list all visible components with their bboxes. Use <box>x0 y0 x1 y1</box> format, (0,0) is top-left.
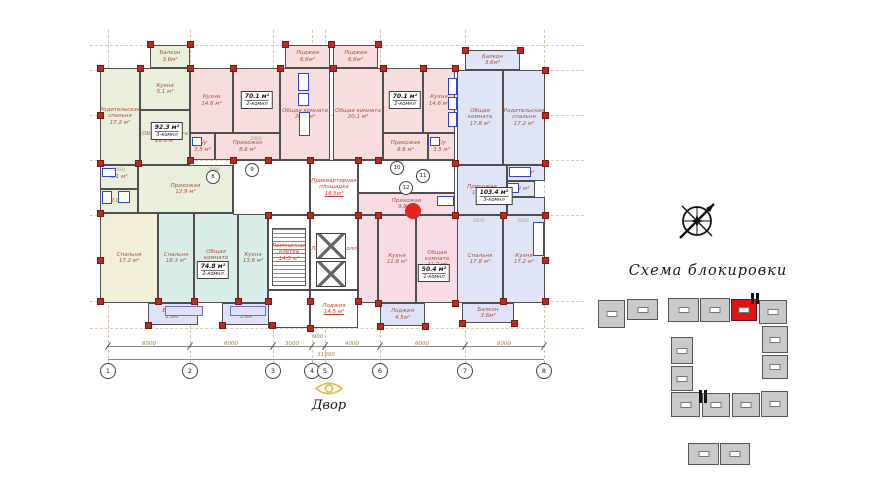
column-marker <box>187 157 194 164</box>
scheme-block[interactable] <box>700 298 730 322</box>
room-core-entry-area: Приквартирная площадка16.5м² <box>310 160 358 215</box>
apartment-type: 1-комнл <box>422 274 446 280</box>
column-marker <box>375 300 382 307</box>
scheme-block[interactable] <box>668 298 699 322</box>
apartment-area: 74.8 м² <box>201 263 225 271</box>
apartment-type: 2-комнл <box>201 271 225 277</box>
room-area: 17.8 м² <box>470 259 490 265</box>
axis-bubble-8: 8 <box>536 363 552 379</box>
plumbing-fixture <box>437 196 454 206</box>
plumbing-fixture <box>448 97 457 110</box>
column-marker <box>422 323 429 330</box>
column-marker <box>511 320 518 327</box>
apartment-type: 3-комнл <box>480 197 509 203</box>
column-marker <box>307 325 314 332</box>
room-green-parent-bedroom: Родительская спальня17.2 м² <box>100 68 140 165</box>
scheme-block-plate <box>770 364 781 370</box>
dimension-value: 6000 <box>497 341 511 347</box>
scheme-block[interactable] <box>762 326 788 353</box>
column-marker <box>97 112 104 119</box>
room-blue-top-living: Общая комната17.8 м² <box>457 70 503 165</box>
room-teal-bedroom: Спальня18.3 м² <box>158 213 194 303</box>
plumbing-fixture <box>192 137 202 146</box>
column-marker <box>147 41 154 48</box>
column-marker <box>377 323 384 330</box>
apartment-type: 2-комнл <box>245 101 269 107</box>
room-area: 6.6м² <box>300 57 315 63</box>
plumbing-fixture <box>448 78 457 95</box>
room-name: Родительская спальня <box>504 108 544 121</box>
column-marker <box>219 322 226 329</box>
scheme-block[interactable] <box>688 443 719 465</box>
blocking-scheme-title: Схема блокировки <box>608 263 808 279</box>
dimension-value: 3000 <box>285 341 299 347</box>
scheme-block[interactable] <box>598 300 625 328</box>
apartment-area: 50.4 м² <box>422 266 446 274</box>
plumbing-fixture <box>298 73 309 91</box>
column-marker <box>542 257 549 264</box>
room-area: 17.2 м² <box>119 258 139 264</box>
column-marker <box>375 41 382 48</box>
room-yellow-bedroom: Спальня17.2 м² <box>100 213 158 303</box>
room-area: 3.6м² <box>162 57 177 63</box>
column-marker <box>517 47 524 54</box>
plumbing-fixture <box>230 306 266 316</box>
dimension-value: 6000 <box>415 341 429 347</box>
scheme-block-plate <box>730 451 741 457</box>
column-marker <box>191 298 198 305</box>
column-marker <box>97 160 104 167</box>
axis-bubble-3: 3 <box>265 363 281 379</box>
column-marker <box>355 298 362 305</box>
elevator-shaft <box>316 233 346 259</box>
scheme-section-tick <box>751 293 754 304</box>
column-marker <box>187 65 194 72</box>
room-area: 4.5м² <box>395 315 410 321</box>
column-marker <box>265 157 272 164</box>
room-pink3-kitchen: Кухня11.6 м² <box>378 215 416 303</box>
room-pink3-gap <box>358 215 378 303</box>
room-blue-top-balcony: Балкон3.6м² <box>465 50 520 70</box>
scheme-block-plate <box>677 376 688 382</box>
column-marker <box>420 65 427 72</box>
column-marker <box>375 212 382 219</box>
room-pink3-living: Общая комната21.2 м² <box>416 215 458 303</box>
room-pink1-loggia: Лоджия6.6м² <box>285 45 330 68</box>
room-name: Общая комната <box>458 108 502 121</box>
scheme-block-plate <box>678 307 689 313</box>
apartment-label: 74.8 м²2-комнл <box>197 261 229 279</box>
dimension-line-segments <box>108 346 544 347</box>
scheme-block-plate <box>769 401 780 407</box>
scheme-section-tick <box>704 390 707 403</box>
room-pink3-loggia: Лоджия4.5м² <box>380 303 425 326</box>
scheme-block[interactable] <box>762 355 788 379</box>
axis-bubble-6: 6 <box>372 363 388 379</box>
column-marker <box>230 157 237 164</box>
scheme-block-plate <box>739 307 750 313</box>
courtyard-label: Двор <box>297 398 361 413</box>
scheme-block[interactable] <box>671 392 700 417</box>
dimension-value: 6000 <box>224 341 238 347</box>
apartment-area: 92.3 м² <box>155 124 179 132</box>
scheme-block[interactable] <box>720 443 750 465</box>
axis-bubble-1: 1 <box>100 363 116 379</box>
interior-dimension: 2820 <box>517 219 528 224</box>
room-area: 17.2 м² <box>514 259 534 265</box>
column-marker <box>452 300 459 307</box>
room-teal-kitchen: Кухня13.8 м² <box>238 213 268 303</box>
room-core-loggia: Лоджия14.5 м² <box>310 290 358 328</box>
column-marker <box>307 157 314 164</box>
room-area: 13.8 м² <box>243 258 263 264</box>
column-marker <box>542 160 549 167</box>
apartment-label: 50.4 м²1-комнл <box>418 264 450 282</box>
column-marker <box>542 67 549 74</box>
room-area: 14.6 м² <box>429 101 449 107</box>
room-name: Приквартирная площадка <box>311 178 357 191</box>
selected-apartment-dot[interactable] <box>405 203 421 219</box>
scheme-block-plate <box>768 309 779 315</box>
column-marker <box>97 257 104 264</box>
scheme-block[interactable] <box>671 337 693 364</box>
interior-dimension: 2920 <box>113 168 124 173</box>
room-area: 16.5м² <box>325 191 344 197</box>
dimension-line-total <box>108 359 544 360</box>
room-area: 3.5 м² <box>194 147 211 153</box>
dimension-value: 900 <box>313 334 324 340</box>
room-area: 14.5 м² <box>324 309 344 315</box>
column-marker <box>97 298 104 305</box>
apartment-type: 2-комнл <box>393 101 417 107</box>
scheme-block-plate <box>741 402 752 408</box>
column-marker <box>452 212 459 219</box>
column-marker <box>277 65 284 72</box>
column-marker <box>328 41 335 48</box>
column-marker <box>452 65 459 72</box>
column-marker <box>542 298 549 305</box>
column-marker <box>135 160 142 167</box>
entrance-bubble-10: 10 <box>390 161 404 175</box>
stairs-glyph <box>272 228 306 286</box>
column-marker <box>542 112 549 119</box>
apartment-area: 103.4 м² <box>480 189 509 197</box>
room-area: 18.3 м² <box>166 258 186 264</box>
interior-dimension: 2980 <box>250 137 261 142</box>
room-name: Общая комната <box>417 250 457 263</box>
floor-plan-canvas: Балкон3.6м²Родительская спальня17.2 м²Ку… <box>0 0 600 499</box>
column-marker <box>307 212 314 219</box>
apartment-label: 70.1 м²2-комнл <box>241 91 273 109</box>
floor-plan-page: Балкон3.6м²Родительская спальня17.2 м²Ку… <box>0 0 888 499</box>
apartment-label: 70.1 м²2-комнл <box>389 91 421 109</box>
room-green-kitchen: Кухня5.1 м² <box>140 68 190 110</box>
room-blue-gap <box>507 197 545 215</box>
room-area: 17.2 м² <box>514 121 534 127</box>
plumbing-fixture <box>299 112 310 136</box>
room-pink2-hall: Прихожая8.6 м² <box>383 133 428 160</box>
room-area: 3.6м² <box>485 60 500 66</box>
column-marker <box>97 210 104 217</box>
column-marker <box>97 65 104 72</box>
apartment-area: 70.1 м² <box>393 93 417 101</box>
column-marker <box>330 65 337 72</box>
column-marker <box>375 157 382 164</box>
column-marker <box>145 322 152 329</box>
apartment-label: 92.3 м²3-комнл <box>151 122 183 140</box>
scheme-block[interactable] <box>759 300 787 324</box>
apartment-label: 103.4 м²3-комнл <box>476 187 513 205</box>
column-marker <box>155 298 162 305</box>
scheme-section-tick <box>699 390 702 403</box>
dimension-value: 4000 <box>345 341 359 347</box>
scheme-block[interactable] <box>761 391 788 417</box>
column-marker <box>230 65 237 72</box>
apartment-area: 70.1 м² <box>245 93 269 101</box>
entrance-bubble-9: 9 <box>245 163 259 177</box>
scheme-section-tick <box>756 293 759 304</box>
column-marker <box>462 47 469 54</box>
room-area: 3.5 м² <box>433 147 450 153</box>
column-marker <box>235 298 242 305</box>
column-marker <box>265 298 272 305</box>
grid-line-horizontal <box>90 328 584 329</box>
plumbing-fixture <box>118 191 130 203</box>
column-marker <box>269 322 276 329</box>
plumbing-fixture <box>165 306 203 316</box>
plumbing-fixture <box>430 137 440 146</box>
column-marker <box>307 298 314 305</box>
column-marker <box>542 212 549 219</box>
column-marker <box>137 65 144 72</box>
column-marker <box>500 212 507 219</box>
room-area: 8.6 м² <box>239 147 256 153</box>
column-marker <box>452 160 459 167</box>
plumbing-fixture <box>533 222 544 256</box>
room-area: 17.8 м² <box>470 121 490 127</box>
column-marker <box>380 65 387 72</box>
entrance-bubble-11: 11 <box>416 169 430 183</box>
scheme-block-plate <box>711 402 722 408</box>
room-area: 3.6м² <box>480 313 495 319</box>
column-marker <box>355 212 362 219</box>
axis-bubble-7: 7 <box>457 363 473 379</box>
room-area: 20.1 м² <box>348 114 368 120</box>
axis-bubble-2: 2 <box>182 363 198 379</box>
scheme-block-plate <box>677 348 688 354</box>
room-pink2-loggia: Лоджия6.6м² <box>333 45 378 68</box>
room-pink2-living: Общая комната20.1 м² <box>333 68 383 160</box>
apartment-type: 3-комнл <box>155 132 179 138</box>
room-area: 5.1 м² <box>157 89 174 95</box>
interior-dimension: 2935 <box>473 219 484 224</box>
axis-bubble-5: 5 <box>317 363 333 379</box>
scheme-block-plate <box>606 311 617 317</box>
room-area: 11.6 м² <box>387 259 407 265</box>
dimension-value: 6000 <box>142 341 156 347</box>
plumbing-fixture <box>448 112 457 127</box>
column-marker <box>282 41 289 48</box>
room-name: Общая комната <box>195 249 237 262</box>
room-area: 14.6 м² <box>201 101 221 107</box>
scheme-block[interactable] <box>627 299 658 320</box>
room-pink1-kitchen: Кухня14.6 м² <box>190 68 233 133</box>
room-blue-bedroom: Спальня17.8 м² <box>457 215 503 303</box>
plumbing-fixture <box>102 191 112 204</box>
entrance-bubble-12: 12 <box>399 181 413 195</box>
scheme-block-plate <box>680 402 691 408</box>
room-blue-balcony-bottom: Балкон3.6м² <box>462 303 514 323</box>
room-area: 8.6 м² <box>397 147 414 153</box>
room-area: 17.2 м² <box>110 120 130 126</box>
scheme-block-plate <box>770 337 781 343</box>
column-marker <box>355 157 362 164</box>
scheme-block-plate <box>710 307 721 313</box>
room-teal-living: Общая комната21.9 м² <box>194 213 238 303</box>
column-marker <box>500 298 507 305</box>
scheme-block-plate <box>637 307 648 313</box>
room-area: 6.6м² <box>348 57 363 63</box>
scheme-block[interactable] <box>732 393 760 417</box>
column-marker <box>187 41 194 48</box>
room-green-balcony: Балкон3.6м² <box>150 45 190 68</box>
compass-icon <box>672 194 722 248</box>
entrance-bubble-8: 8 <box>206 170 220 184</box>
column-marker <box>265 212 272 219</box>
room-blue-top-parent-bedroom: Родительская спальня17.2 м² <box>503 70 545 165</box>
column-marker <box>459 320 466 327</box>
plumbing-fixture <box>298 93 309 106</box>
scheme-block[interactable] <box>671 366 693 391</box>
plumbing-fixture <box>509 167 531 177</box>
room-name: Родительская спальня <box>100 107 140 120</box>
dimension-total-value: 31900 <box>317 352 335 358</box>
elevator-shaft <box>316 261 346 287</box>
scheme-block-plate <box>698 451 709 457</box>
room-area: 12.9 м² <box>175 189 195 195</box>
